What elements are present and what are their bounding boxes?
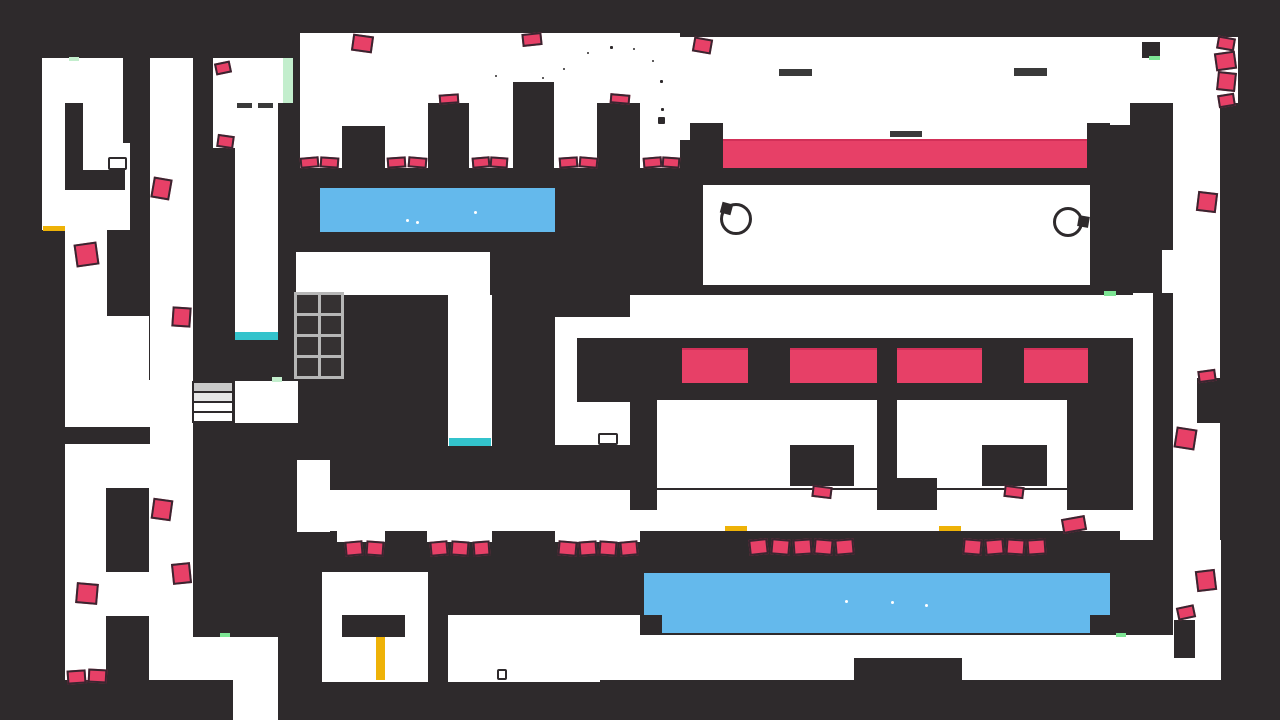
hazard-block: [962, 538, 982, 556]
room-area: [235, 58, 278, 340]
hazard-block: [692, 36, 713, 54]
water-bubble: [406, 219, 409, 222]
exit-strip: [235, 332, 278, 340]
hazard-block: [557, 540, 577, 557]
wall-block: [513, 82, 554, 168]
hazard-block: [598, 540, 617, 556]
wall-block: [1088, 125, 1160, 168]
checkpoint-strip: [1116, 633, 1126, 637]
hazard-block: [1005, 538, 1025, 555]
ledge-platform: [779, 69, 812, 76]
room-area: [106, 572, 149, 616]
gold-strip: [725, 526, 747, 531]
hazard-block: [813, 538, 833, 556]
wall-block: [123, 58, 150, 143]
wall-block: [106, 488, 149, 572]
hazard-block: [662, 156, 681, 168]
water-pool: [644, 573, 1110, 615]
tile-cell: [297, 316, 318, 334]
hazard-block: [610, 93, 631, 105]
checkpoint-strip: [1104, 291, 1116, 296]
tile-cell: [297, 295, 318, 313]
hazard-block: [748, 538, 769, 556]
exit-strip: [449, 438, 491, 446]
water-pool: [662, 615, 1090, 633]
wall-block: [630, 400, 657, 510]
room-area: [296, 252, 490, 295]
hazard-block: [75, 582, 99, 605]
ledge-platform: [1014, 68, 1047, 76]
debris-particle: [495, 75, 497, 77]
wall-block: [1174, 620, 1195, 658]
hazard-block: [1026, 538, 1046, 555]
wall-block: [83, 170, 125, 190]
hazard-block: [1173, 426, 1197, 450]
hazard-block: [1196, 191, 1218, 213]
wall-block: [877, 400, 897, 478]
water-bubble: [891, 601, 894, 604]
tile-cell: [297, 358, 318, 376]
hazard-block: [1217, 93, 1236, 108]
debris-particle: [542, 77, 544, 79]
tile-cell: [321, 358, 342, 376]
checkpoint-strip: [283, 58, 293, 103]
hazard-block: [472, 540, 490, 556]
lava-pool: [723, 139, 1087, 168]
hazard-block: [472, 156, 491, 169]
hazard-block: [490, 156, 509, 168]
wall-block: [60, 427, 150, 444]
checkpoint-strip: [69, 57, 79, 61]
debris-particle: [563, 68, 565, 70]
hazard-block: [450, 540, 469, 556]
hazard-block: [351, 34, 374, 54]
hazard-block: [387, 156, 407, 168]
lava-pool: [682, 348, 748, 383]
wall-block: [342, 126, 385, 168]
debris-particle: [633, 48, 635, 50]
hazard-block: [300, 156, 320, 169]
room-area: [192, 637, 278, 680]
gold-strip: [939, 526, 961, 531]
gold-strip: [43, 226, 65, 231]
room-area: [448, 615, 600, 682]
tile-grid: [294, 292, 344, 379]
water-bubble: [925, 604, 928, 607]
hazard-block: [619, 540, 638, 557]
hazard-block: [344, 540, 363, 557]
room-area: [65, 380, 150, 427]
hazard-block: [521, 32, 542, 47]
tile-cell: [297, 337, 318, 355]
room-area: [42, 58, 130, 230]
hazard-block: [834, 538, 854, 556]
lava-pool: [1024, 348, 1088, 383]
crate: [497, 669, 507, 680]
wall-block: [790, 445, 854, 486]
hazard-block: [150, 177, 172, 201]
hazard-block: [365, 540, 384, 556]
room-area: [1162, 250, 1173, 293]
hazard-block: [578, 540, 597, 556]
tile-cell: [321, 295, 342, 313]
room-area: [1133, 293, 1153, 540]
lava-pool: [897, 348, 982, 383]
hazard-block: [408, 156, 428, 169]
hazard-block: [88, 669, 108, 684]
checkpoint-strip: [220, 633, 230, 637]
hazard-block: [1216, 71, 1237, 92]
hazard-block: [439, 93, 460, 104]
hazard-block: [1195, 569, 1217, 592]
hazard-block: [171, 306, 191, 327]
wall-block: [65, 103, 83, 190]
hazard-block: [74, 242, 100, 268]
debris-particle: [661, 108, 664, 111]
hazard-block: [320, 156, 340, 168]
ledge-platform: [890, 131, 922, 137]
hazard-block: [216, 134, 235, 149]
room-area: [703, 185, 1090, 285]
level-canvas[interactable]: [0, 0, 1280, 720]
water-pool: [320, 188, 555, 232]
water-bubble: [474, 211, 477, 214]
hazard-block: [1003, 485, 1024, 499]
room-area: [630, 295, 1153, 338]
wall-block: [342, 615, 405, 637]
hazard-block: [67, 669, 87, 684]
hazard-block: [984, 538, 1004, 556]
water-bubble: [845, 600, 848, 603]
hazard-block: [770, 538, 790, 556]
hazard-block: [643, 156, 663, 169]
tile-cell: [321, 316, 342, 334]
ledge-platform: [258, 103, 273, 108]
crate: [598, 433, 618, 445]
hazard-block: [811, 485, 832, 499]
hazard-block: [579, 156, 599, 169]
ring-anchor-icon: [1077, 215, 1090, 228]
wall-block: [1197, 378, 1221, 423]
tile-cell: [321, 337, 342, 355]
debris-particle: [587, 52, 589, 54]
hazard-block: [1214, 51, 1237, 72]
wall-block: [690, 123, 723, 168]
wall-block: [597, 103, 640, 168]
room-area: [233, 680, 278, 720]
wall-block: [982, 445, 1047, 486]
stair-step: [192, 411, 234, 423]
debris-particle: [610, 46, 613, 49]
wall-block: [854, 658, 962, 680]
room-area: [150, 58, 193, 680]
checkpoint-strip: [272, 377, 282, 382]
debris-particle: [658, 117, 665, 124]
hazard-block: [1197, 369, 1216, 383]
gold-strip: [376, 637, 385, 680]
room-area: [235, 381, 298, 423]
hazard-block: [429, 540, 448, 557]
hazard-block: [1061, 515, 1087, 534]
hazard-block: [151, 498, 174, 522]
lava-pool: [790, 348, 877, 383]
wall-block: [877, 478, 937, 510]
water-bubble: [416, 221, 419, 224]
hazard-block: [171, 562, 192, 585]
checkpoint-strip: [1149, 56, 1160, 60]
debris-particle: [660, 80, 663, 83]
wall-block: [1067, 400, 1132, 510]
wall-block: [577, 338, 630, 402]
hazard-block: [792, 538, 812, 555]
wall-block: [106, 616, 149, 680]
debris-particle: [652, 60, 654, 62]
wall-block: [428, 103, 469, 168]
crate: [108, 157, 127, 170]
ledge-platform: [237, 103, 252, 108]
room-area: [448, 295, 492, 446]
hazard-block: [559, 156, 579, 168]
